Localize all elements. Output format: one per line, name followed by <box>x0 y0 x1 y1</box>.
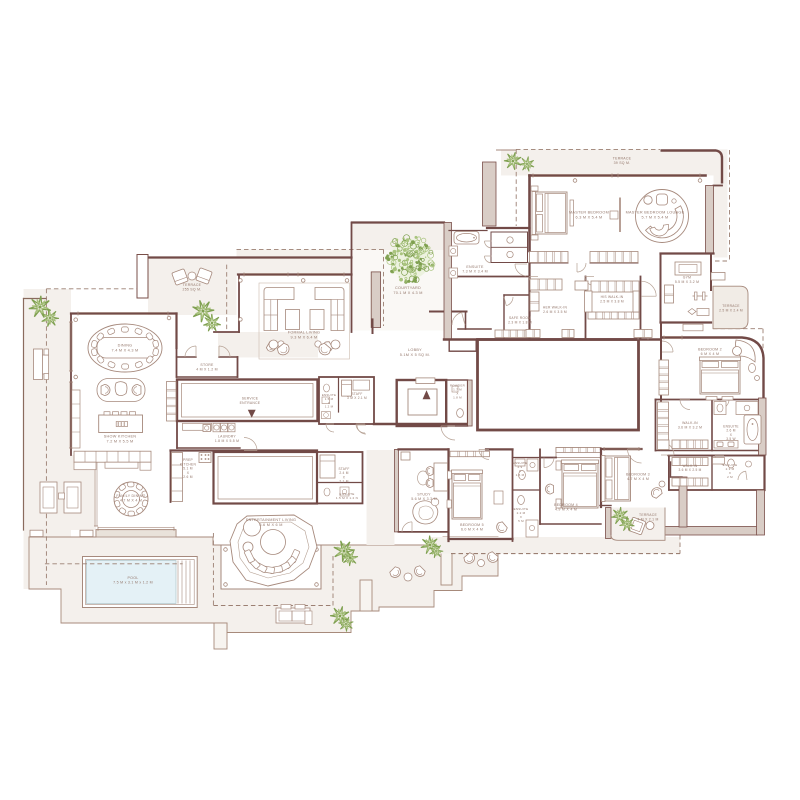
svg-text:BEDROOM 34.7 M X 4 M: BEDROOM 34.7 M X 4 M <box>626 473 650 482</box>
svg-text:BEDROOM 44.9 M X 4 M: BEDROOM 44.9 M X 4 M <box>554 503 578 512</box>
svg-text:HIS WALK-IN2.5 M X 3.8 M: HIS WALK-IN2.5 M X 3.8 M <box>600 295 624 303</box>
svg-text:SERVICEENTRANCE: SERVICEENTRANCE <box>240 397 261 405</box>
svg-text:BEDROOM 26 M X 4 M: BEDROOM 26 M X 4 M <box>698 348 722 357</box>
svg-text:COURTYARD70.1 M X 4.3 M: COURTYARD70.1 M X 4.3 M <box>393 286 422 295</box>
svg-text:HER WALK-IN2.6 M X 3.5 M: HER WALK-IN2.6 M X 3.5 M <box>543 306 568 314</box>
svg-text:TERRACE255 SQ M.: TERRACE255 SQ M. <box>183 283 202 292</box>
svg-text:SHOW KITCHEN7.2 M X 5.5 M: SHOW KITCHEN7.2 M X 5.5 M <box>104 435 137 444</box>
svg-text:FAMILY DINING4.7 M X 4 M: FAMILY DINING4.7 M X 4 M <box>116 494 145 503</box>
svg-text:FORMAL LIVING9.3 M X 6.4 M: FORMAL LIVING9.3 M X 6.4 M <box>288 331 320 340</box>
svg-text:TERRACE2.5 M X 2.4 M: TERRACE2.5 M X 2.4 M <box>719 304 743 312</box>
svg-text:BEDROOM 56.0 M X 4 M: BEDROOM 56.0 M X 4 M <box>460 523 484 532</box>
svg-text:SAFE ROOM2.3 M X 1.8 M: SAFE ROOM2.3 M X 1.8 M <box>508 316 532 324</box>
svg-text:LAUNDRY1.8 M X 5.5 M: LAUNDRY1.8 M X 5.5 M <box>215 435 239 443</box>
svg-text:TERRACE39 SQ M.: TERRACE39 SQ M. <box>613 157 632 166</box>
svg-text:TERRACE4 M X 2.1 M: TERRACE4 M X 2.1 M <box>637 513 658 521</box>
